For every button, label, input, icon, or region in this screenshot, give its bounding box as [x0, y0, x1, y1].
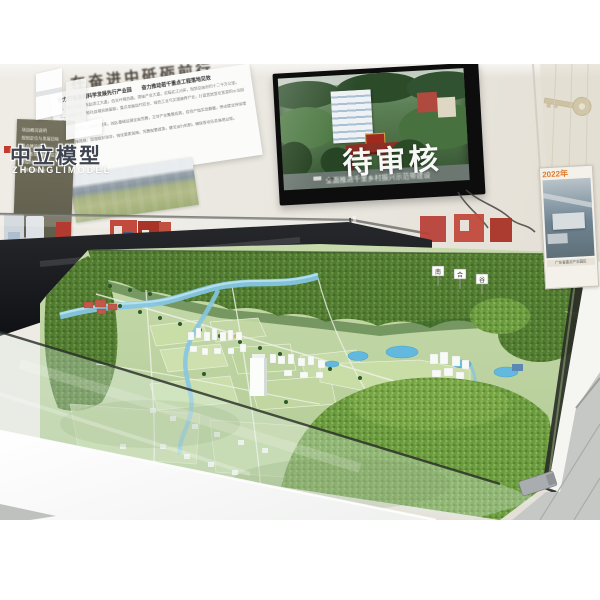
- terrain-fields: [70, 318, 470, 480]
- peak-sign-label: 谷: [479, 276, 485, 284]
- terrain-river: [60, 274, 482, 454]
- terrain-roads: [96, 278, 470, 504]
- brand-logo-icon: [28, 66, 112, 146]
- model-tower: [250, 354, 267, 396]
- case-model-piece: [74, 238, 126, 254]
- poster-building: [552, 212, 585, 230]
- photo-area: 在奋进中砥砺前行 奋力打造县域科学发展先行产业园 奋力推动若干重点工程落地见效 …: [0, 64, 600, 520]
- terrain-trees: [108, 284, 422, 404]
- tv-screen: 待审核 全面推进千里乡村振兴示范带建设: [278, 68, 470, 190]
- glass-right-edge: [542, 254, 588, 494]
- model-houses-scattered: [120, 408, 310, 505]
- peak-signs: 南 合 谷: [432, 266, 488, 294]
- case-black-base: [0, 222, 432, 336]
- terrain-model: 南 合 谷: [40, 244, 600, 520]
- terrain-hill-left: [45, 256, 118, 411]
- floor-tiles: [512, 372, 600, 520]
- poster-road: [542, 192, 594, 210]
- wall-tv: 待审核 全面推进千里乡村振兴示范带建设: [272, 64, 485, 206]
- poster-caption: 广东省重点产业园区: [547, 257, 595, 267]
- display-case: [0, 214, 512, 336]
- poster-image: [542, 177, 594, 257]
- glass-front-pane: [0, 332, 540, 520]
- terrain-ponds: [325, 346, 518, 377]
- watermark: 中立模型 ZHONGLIMODEL: [4, 66, 204, 186]
- side-ledge: [548, 258, 600, 492]
- tv-cables: [458, 190, 535, 232]
- terrain-hills-back: [88, 250, 588, 328]
- glass-clamp: [518, 471, 557, 496]
- wall-poster: 2022年 广东省重点产业园区: [539, 165, 599, 290]
- peak-sign-label: 南: [435, 268, 441, 276]
- showroom-photo: 在奋进中砥砺前行 奋力打造县域科学发展先行产业园 奋力推动若干重点工程落地见效 …: [0, 0, 600, 600]
- terrain-mound-front: [276, 378, 553, 520]
- brand-name-en: ZHONGLIMODEL: [12, 165, 111, 175]
- model-buildings-white: [188, 328, 538, 421]
- right-structure: [512, 249, 600, 520]
- red-product-boxes: [56, 214, 512, 249]
- table-rim: [0, 430, 500, 520]
- floor-sliver-left: [0, 504, 56, 520]
- peak-sign-label: 合: [457, 271, 463, 279]
- model-buildings-red: [84, 300, 117, 314]
- poster-building: [547, 233, 567, 244]
- tv-glare: [278, 68, 470, 190]
- model-blue-roof: [512, 364, 523, 371]
- gold-key-icon: [540, 86, 596, 125]
- case-model-piece: [84, 236, 114, 246]
